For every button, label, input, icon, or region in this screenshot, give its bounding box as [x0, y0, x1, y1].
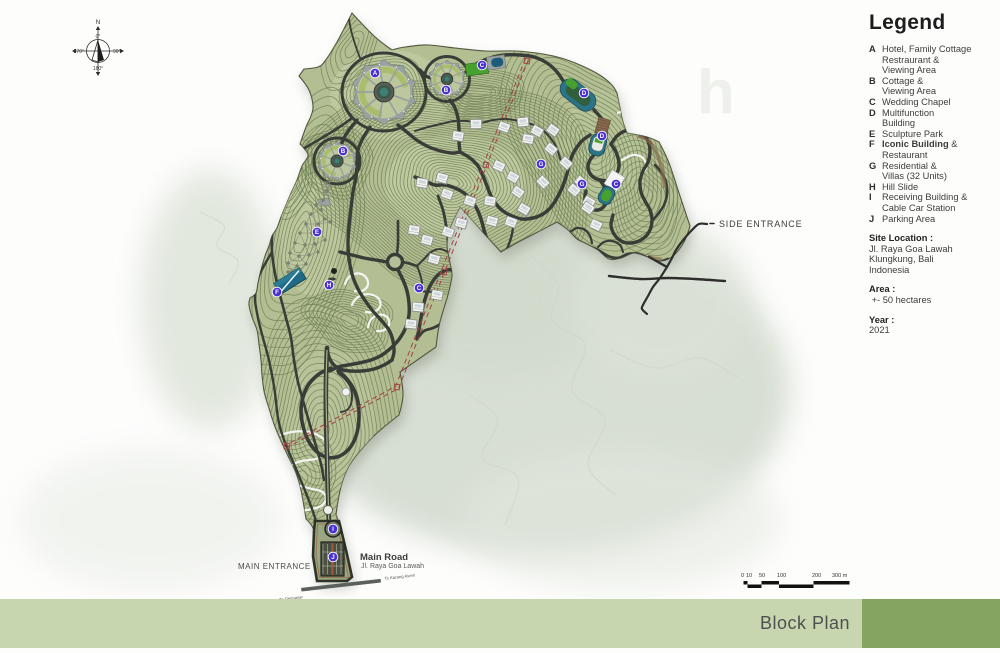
svg-text:Jl. Raya Goa Lawah: Jl. Raya Goa Lawah	[361, 563, 424, 570]
svg-text:C: C	[417, 285, 422, 292]
svg-text:0: 0	[741, 573, 744, 579]
svg-text:200: 200	[812, 573, 821, 579]
svg-text:50: 50	[759, 573, 765, 579]
svg-text:D: D	[582, 90, 587, 97]
svg-text:C: C	[614, 181, 619, 188]
svg-text:0°: 0°	[96, 34, 101, 40]
svg-text:270°: 270°	[74, 49, 84, 55]
svg-text:MAIN ENTRANCE: MAIN ENTRANCE	[238, 562, 311, 571]
svg-text:H: H	[327, 282, 332, 289]
svg-text:90°: 90°	[113, 49, 121, 55]
svg-text:D: D	[600, 133, 605, 140]
svg-text:Main Road: Main Road	[360, 552, 408, 563]
svg-text:SIDE ENTRANCE: SIDE ENTRANCE	[719, 219, 802, 229]
svg-text:I: I	[332, 526, 334, 533]
svg-text:300 m: 300 m	[832, 573, 848, 579]
svg-text:N: N	[96, 19, 101, 26]
svg-text:A: A	[373, 70, 378, 77]
svg-text:B: B	[341, 148, 346, 155]
svg-text:180°: 180°	[93, 66, 103, 72]
svg-text:G: G	[580, 181, 585, 188]
svg-text:G: G	[539, 161, 544, 168]
svg-text:100: 100	[777, 573, 786, 579]
svg-text:E: E	[315, 229, 319, 236]
svg-text:J: J	[331, 554, 335, 561]
svg-text:B: B	[444, 87, 449, 94]
svg-text:10: 10	[746, 573, 752, 579]
svg-text:F: F	[275, 289, 279, 296]
svg-text:h: h	[697, 58, 735, 127]
svg-text:C: C	[480, 62, 485, 69]
